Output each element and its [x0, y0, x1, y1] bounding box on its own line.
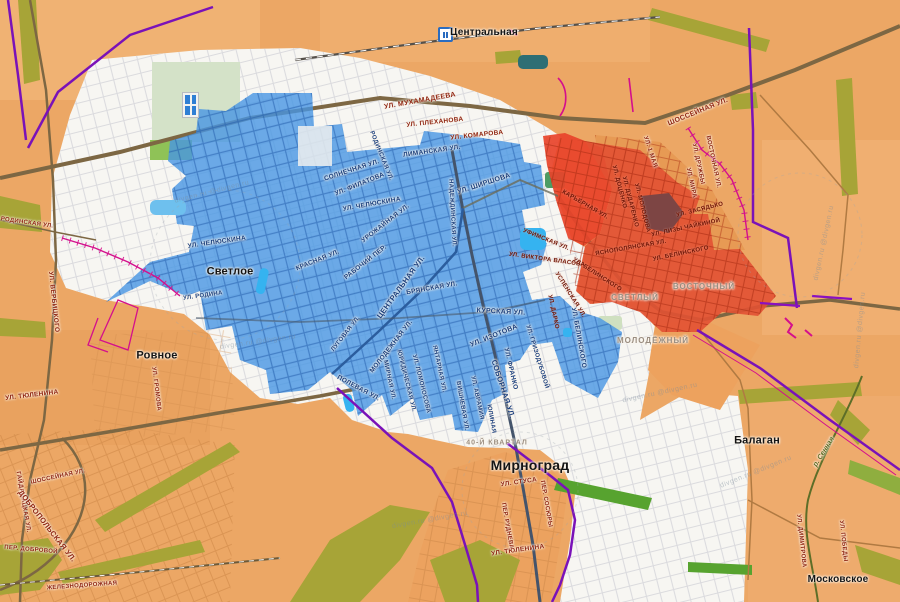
- railway-station-icon: [438, 27, 453, 42]
- building-icon: [182, 92, 199, 118]
- map-base-layer: [0, 0, 900, 602]
- map-canvas[interactable]: Центральная Лиманская ул.Родинская ул.Со…: [0, 0, 900, 602]
- urban-gap: [298, 126, 332, 166]
- field-patch: [320, 0, 650, 62]
